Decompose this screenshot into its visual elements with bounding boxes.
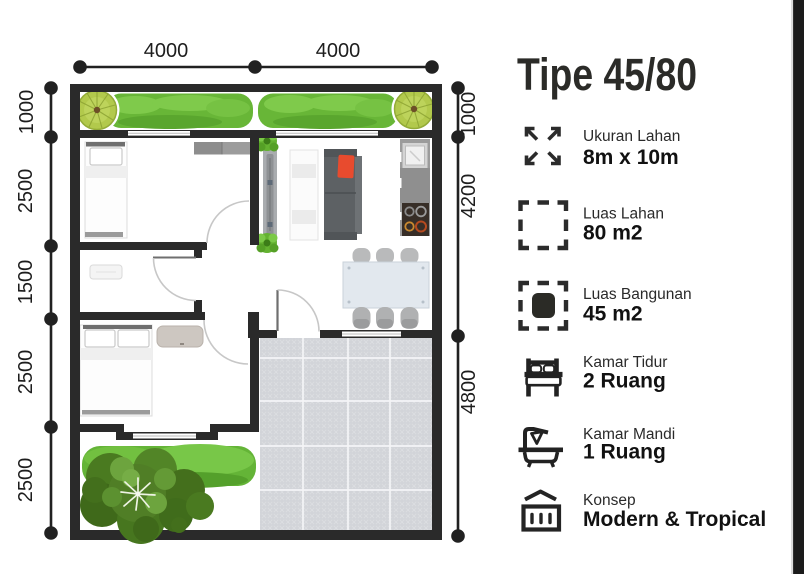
svg-text:4800: 4800 xyxy=(458,370,480,415)
svg-text:1000: 1000 xyxy=(16,90,38,135)
svg-text:Modern & Tropical: Modern & Tropical xyxy=(583,508,766,531)
svg-text:8m x 10m: 8m x 10m xyxy=(583,146,679,169)
svg-text:Luas Lahan: Luas Lahan xyxy=(583,206,664,223)
svg-text:Tipe 45/80: Tipe 45/80 xyxy=(517,49,697,100)
svg-text:2500: 2500 xyxy=(15,169,37,214)
svg-text:80 m2: 80 m2 xyxy=(583,222,643,245)
svg-text:Ukuran Lahan: Ukuran Lahan xyxy=(583,128,680,145)
svg-text:2500: 2500 xyxy=(15,458,37,503)
svg-text:Kamar Tidur: Kamar Tidur xyxy=(583,354,667,371)
svg-text:1000: 1000 xyxy=(458,92,480,137)
svg-text:Konsep: Konsep xyxy=(583,492,636,509)
svg-text:4000: 4000 xyxy=(316,40,361,62)
svg-text:2 Ruang: 2 Ruang xyxy=(583,370,666,393)
svg-text:1500: 1500 xyxy=(15,260,37,305)
svg-text:2500: 2500 xyxy=(15,350,37,395)
svg-text:4000: 4000 xyxy=(144,40,189,62)
svg-text:4200: 4200 xyxy=(458,174,480,219)
svg-text:45 m2: 45 m2 xyxy=(583,303,643,326)
svg-text:1 Ruang: 1 Ruang xyxy=(583,441,666,464)
svg-text:Luas Bangunan: Luas Bangunan xyxy=(583,286,692,303)
